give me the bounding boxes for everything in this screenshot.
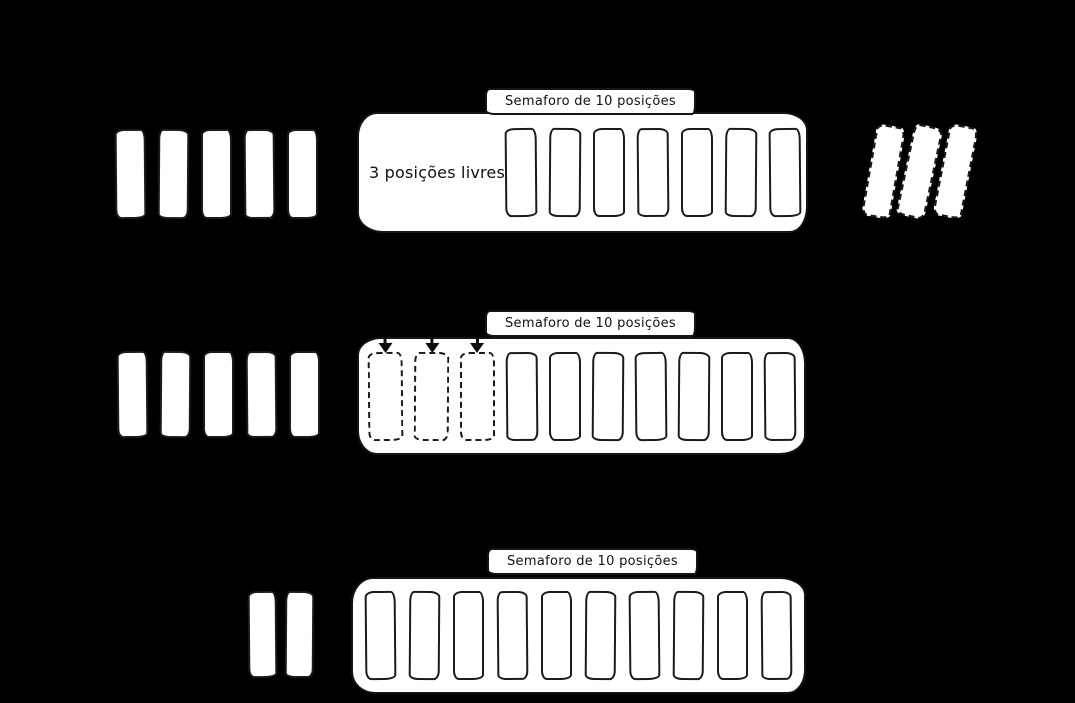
occupied-slot (591, 351, 624, 440)
pending-slot (413, 351, 449, 440)
pending-slot (367, 351, 403, 440)
process-token (244, 129, 276, 219)
semaphore-label-2: Semaforo de 10 posições (485, 310, 696, 337)
token-group-left-1 (115, 129, 318, 219)
process-token (248, 591, 278, 678)
occupied-slot (505, 128, 538, 217)
semaphore-box-3 (351, 577, 806, 694)
process-token (158, 129, 190, 219)
occupied-slot (769, 128, 802, 217)
occupied-slot (717, 591, 748, 680)
occupied-slot (721, 352, 753, 441)
occupied-slot (549, 128, 582, 217)
token-group-left-2 (117, 351, 320, 438)
semaphore-label-1: Semaforo de 10 posições (485, 88, 696, 115)
process-token (201, 129, 232, 219)
process-token (203, 351, 234, 438)
down-arrow-icon (470, 337, 484, 353)
occupied-slot (637, 128, 670, 217)
down-arrow-icon (377, 336, 391, 352)
occupied-slot (541, 591, 572, 680)
occupied-slot (549, 352, 581, 441)
semaphore-label-3: Semaforo de 10 posições (487, 548, 698, 575)
process-token (115, 129, 147, 219)
free-positions-text: 3 posições livres (364, 163, 505, 182)
process-token (287, 129, 318, 219)
occupied-slot (681, 128, 713, 217)
occupied-slot (365, 591, 397, 680)
occupied-slot (505, 351, 538, 440)
process-token (160, 351, 192, 438)
semaphore-box-2 (357, 337, 806, 455)
process-token (246, 351, 278, 438)
token-group-waiting-1 (869, 125, 970, 218)
occupied-slot (453, 591, 484, 680)
down-arrow-icon (424, 336, 438, 352)
occupied-slot (673, 591, 705, 680)
occupied-slot (409, 591, 441, 680)
process-token (117, 351, 149, 438)
pending-slot (460, 352, 495, 441)
occupied-slot (497, 591, 529, 680)
occupied-slot (593, 128, 625, 217)
occupied-slot (677, 351, 710, 440)
occupied-slot (763, 351, 796, 440)
process-token (285, 591, 315, 678)
occupied-slot (585, 591, 617, 680)
occupied-slot (629, 591, 661, 680)
occupied-slot (634, 351, 667, 440)
semaphore-slots-1 (505, 128, 801, 217)
semaphore-diagram-canvas: { "palette": { "background": "#000000", … (0, 0, 1075, 703)
process-token (289, 351, 320, 438)
occupied-slot (725, 128, 758, 217)
token-group-left-3 (248, 591, 314, 678)
semaphore-slots-2 (368, 352, 796, 441)
semaphore-slots-3 (365, 591, 792, 680)
semaphore-box-1: 3 posições livres (357, 112, 808, 233)
occupied-slot (761, 591, 793, 680)
